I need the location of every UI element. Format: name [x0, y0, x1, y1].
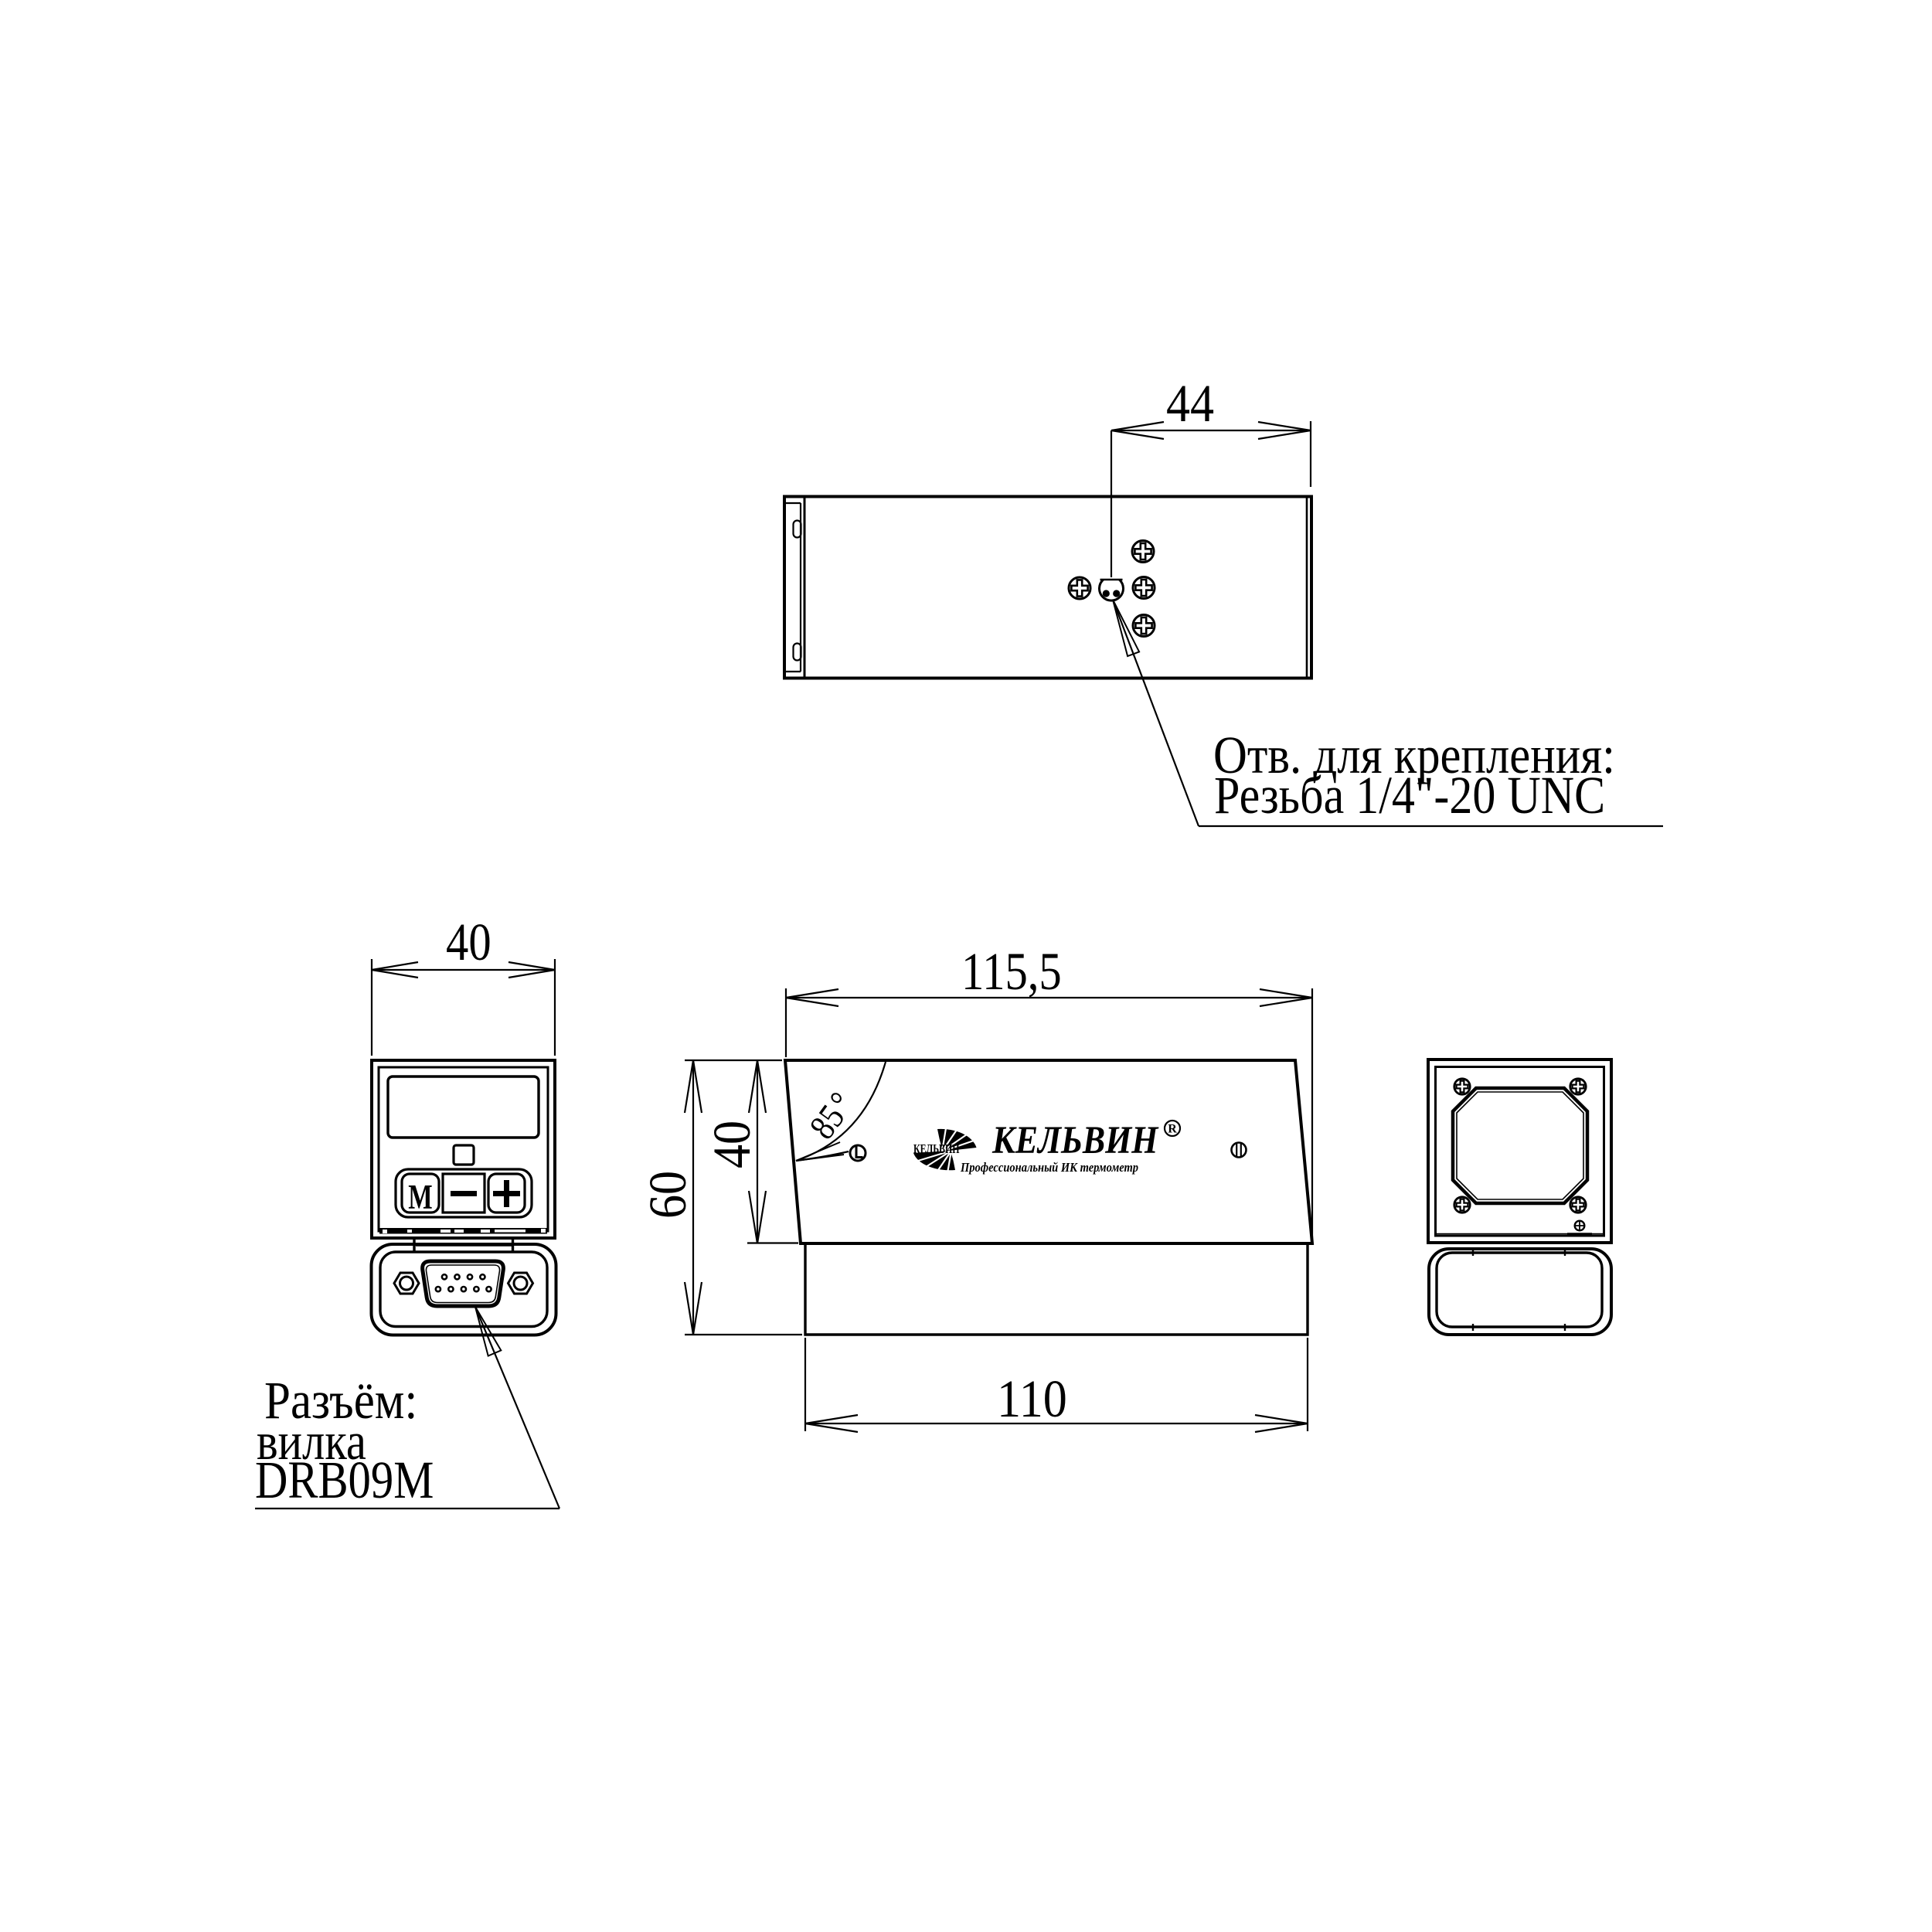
- svg-text:Резьба 1/4"-20 UNC: Резьба 1/4"-20 UNC: [1214, 765, 1605, 825]
- svg-text:КЕЛЬВИН: КЕЛЬВИН: [913, 1142, 959, 1156]
- svg-text:60: 60: [639, 1171, 698, 1219]
- svg-text:M: M: [408, 1178, 432, 1216]
- svg-text:40: 40: [703, 1121, 762, 1168]
- svg-text:110: 110: [997, 1370, 1067, 1429]
- svg-text:КЕЛЬВИН: КЕЛЬВИН: [992, 1119, 1159, 1162]
- svg-text:DRB09M: DRB09M: [255, 1451, 434, 1510]
- svg-text:115,5: 115,5: [961, 942, 1062, 1002]
- svg-text:R: R: [1168, 1123, 1177, 1136]
- svg-text:44: 44: [1166, 375, 1214, 434]
- svg-text:Профессиональный ИК термометр: Профессиональный ИК термометр: [960, 1161, 1138, 1175]
- svg-text:40: 40: [446, 913, 492, 972]
